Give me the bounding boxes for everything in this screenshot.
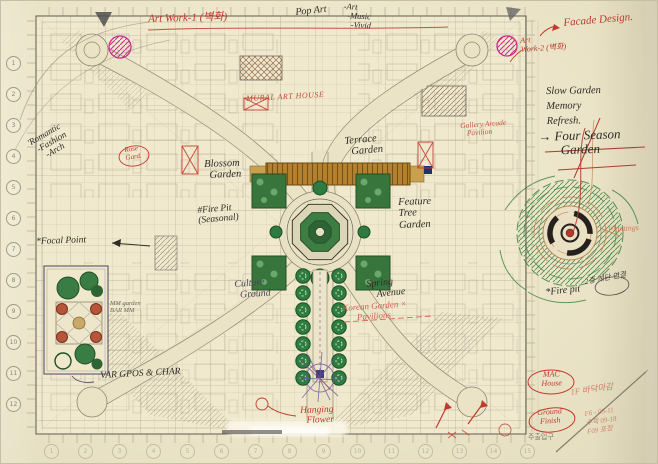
annotation-main-entrance: 주출입구 <box>528 434 554 442</box>
annotation-feature-tree-garden: Feature Tree Garden <box>398 196 432 231</box>
grid-bubble-left: 2 <box>6 87 21 102</box>
annotation-art-work-2: Art Work-2 (벽화) <box>520 34 566 54</box>
annotation-mac-house: MAC House <box>541 370 562 388</box>
grid-bubble-left: 6 <box>6 211 21 226</box>
site-plan-drawing <box>0 0 658 464</box>
annotation-terrace-garden: Terrace Garden <box>344 133 384 159</box>
chair-vignette <box>44 266 108 382</box>
grid-bubble-bottom: 10 <box>350 444 365 459</box>
grid-bubble-bottom: 3 <box>112 444 127 459</box>
annotation-pop-list: -Art -Music -Vivid <box>343 2 373 31</box>
grid-bubble-left: 9 <box>6 304 21 319</box>
grid-bubble-left: 11 <box>6 366 21 381</box>
grid-bubble-bottom: 2 <box>78 444 93 459</box>
grid-bubble-bottom: 5 <box>180 444 195 459</box>
annotation-slow-garden: Slow Garden Memory Refresh. <box>546 83 602 129</box>
grid-bubble-bottom: 4 <box>146 444 161 459</box>
annotation-art-work-1: Art Work-1 (벽화) <box>148 12 227 26</box>
annotation-culture-ground: Culture Ground <box>234 278 271 302</box>
scanned-sketch-page: Art Work-1 (벽화) Pop Art -Art -Music -Viv… <box>0 0 658 464</box>
annotation-gallery: Gallery Arcade Pavilion <box>460 119 507 138</box>
grid-bubble-left: 12 <box>6 397 21 412</box>
grid-bubble-bottom: 9 <box>316 444 331 459</box>
grid-bubble-bottom: 7 <box>248 444 263 459</box>
grid-bubble-left: 10 <box>6 335 21 350</box>
annotation-focal-point: *Focal Point <box>36 235 86 247</box>
grid-bubble-left: 1 <box>6 56 21 71</box>
annotation-four-season-garden: → Four Season Garden <box>538 127 621 158</box>
grid-bubble-left: 7 <box>6 242 21 257</box>
grid-bubble-left: 3 <box>6 118 21 133</box>
annotation-ground-finish: Ground Finish <box>537 407 563 426</box>
grid-bubble-left: 5 <box>6 180 21 195</box>
grid-bubble-bottom: 15 <box>520 444 535 459</box>
grid-bubble-left: 4 <box>6 149 21 164</box>
grid-bubble-bottom: 6 <box>214 444 229 459</box>
annotation-mm-garden: MM garden BAR MM <box>110 300 141 314</box>
annotation-fire-pit-west: #Fire Pit (Seasonal) <box>197 202 239 226</box>
grid-bubble-left: 8 <box>6 273 21 288</box>
grid-bubble-bottom: 1 <box>44 444 59 459</box>
grid-bubble-bottom: 11 <box>384 444 399 459</box>
grid-bubble-bottom: 14 <box>486 444 501 459</box>
grid-bubble-bottom: 13 <box>452 444 467 459</box>
annotation-red-notes: F6 - 05-11 수목 09-18 F09 포장 <box>584 406 618 437</box>
grid-bubble-bottom: 8 <box>282 444 297 459</box>
annotation-rose-garden: Rose Gard. <box>124 145 142 162</box>
annotation-hanging-flower: Hanging Flower <box>300 405 334 427</box>
grid-bubble-bottom: 12 <box>418 444 433 459</box>
annotation-blossom-garden: Blossom Garden <box>204 158 241 182</box>
annotation-spring-avenue: Spring Avenue <box>366 276 406 301</box>
